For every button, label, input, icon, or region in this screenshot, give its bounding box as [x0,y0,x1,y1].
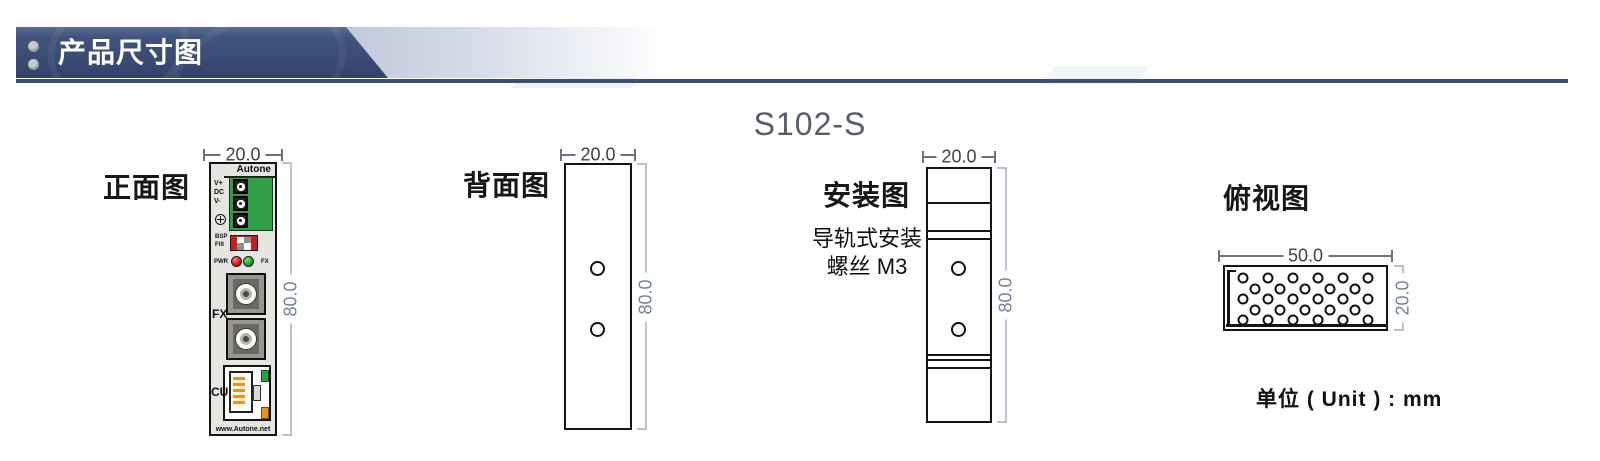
dimension-tick [282,434,291,436]
back-view-label: 背面图 [463,164,550,204]
screw-hole [590,322,605,337]
dimension-tick [637,163,646,165]
dimension-tick [922,151,924,163]
fx-led-icon [243,256,254,267]
dip-switch [230,235,258,251]
front-device: Autone V+ DC V- BSP Filt PWR FX FX [209,162,277,436]
rj45-latch [253,385,261,401]
header-underline [16,79,1568,83]
fiber-connector-icon [226,318,266,360]
dip-label-filt: Filt [215,242,231,248]
page-title: 产品尺寸图 [58,27,203,78]
dimension-tick [1218,250,1220,262]
screw-hole [951,261,966,276]
rj45-jack-icon [229,371,253,413]
top-width-dimension: 50.0 [1218,247,1393,265]
fiber-port-icon [235,328,257,350]
back-height-value: 80.0 [636,272,657,321]
website-label: www.Autone.net [211,426,275,433]
dimension-tick [203,149,205,161]
dimension-tick [1391,250,1393,262]
bullet-dot [28,59,39,70]
top-depth-dimension: 20.0 [1394,265,1412,331]
rj45-port [223,365,271,421]
install-section-line [928,359,990,361]
dimension-tick [560,149,562,161]
install-section-line [928,230,990,232]
page: 产品尺寸图 S102-S 正面图 20.0 80.0 Autone V+ DC … [0,0,1600,461]
install-section-line [928,202,990,204]
brand-label: Autone [211,164,271,175]
pwr-led-label: PWR [214,259,228,265]
install-panel [926,167,992,423]
screw-terminal-icon [233,196,248,211]
front-view-label: 正面图 [103,166,190,206]
ground-icon [215,214,226,225]
top-view-label: 俯视图 [1223,177,1310,217]
header-gradient-band [340,27,655,78]
dip-label-bsp: BSP [215,234,231,240]
dimension-tick [997,421,1006,423]
install-note-line2: 螺丝 M3 [806,249,928,281]
power-led-icon [231,256,242,267]
bullet-dot [28,41,39,52]
top-width-value: 50.0 [1283,246,1328,267]
back-panel [564,163,632,430]
top-depth-value: 20.0 [1393,273,1414,322]
screw-hole [590,261,605,276]
dimension-tick [282,162,291,164]
install-section-line [928,238,990,240]
install-section-line [928,367,990,369]
front-height-dimension: 80.0 [282,162,300,436]
back-height-dimension: 80.0 [637,163,655,430]
fiber-port-icon [235,283,257,305]
dimension-tick [634,149,636,161]
install-height-dimension: 80.0 [997,167,1015,423]
dimension-tick [637,428,646,430]
fiber-connector-icon [226,273,266,315]
dimension-tick [1394,265,1403,267]
screw-terminal-icon [233,179,248,194]
fx-port-label: FX [212,307,227,321]
back-width-dimension: 20.0 [560,146,636,164]
install-view-label: 安装图 [823,174,910,214]
dimension-tick [994,151,996,163]
dimension-tick [997,167,1006,169]
act-led-icon [261,407,269,419]
ventilation-holes [1223,265,1388,331]
model-title: S102-S [710,106,910,143]
terminal-label-dc: DC [214,188,230,197]
terminal-label-vminus: V- [214,197,230,206]
terminal-label-vplus: V+ [214,179,230,188]
screw-terminal-icon [233,213,248,228]
dimension-tick [1394,329,1403,331]
unit-note: 单位 ( Unit ) : mm [1256,383,1442,413]
dip-switch-sliders [237,237,251,250]
rj45-pins [233,377,245,407]
cu-port-label: CU [211,385,228,399]
link-led-icon [261,370,269,382]
screw-hole [951,322,966,337]
fx-led-label: FX [261,259,269,265]
dimension-tick [281,149,283,161]
install-width-value: 20.0 [936,147,981,168]
front-height-value: 80.0 [281,274,302,323]
install-width-dimension: 20.0 [922,148,996,166]
install-section-line [928,354,990,356]
install-height-value: 80.0 [996,270,1017,319]
